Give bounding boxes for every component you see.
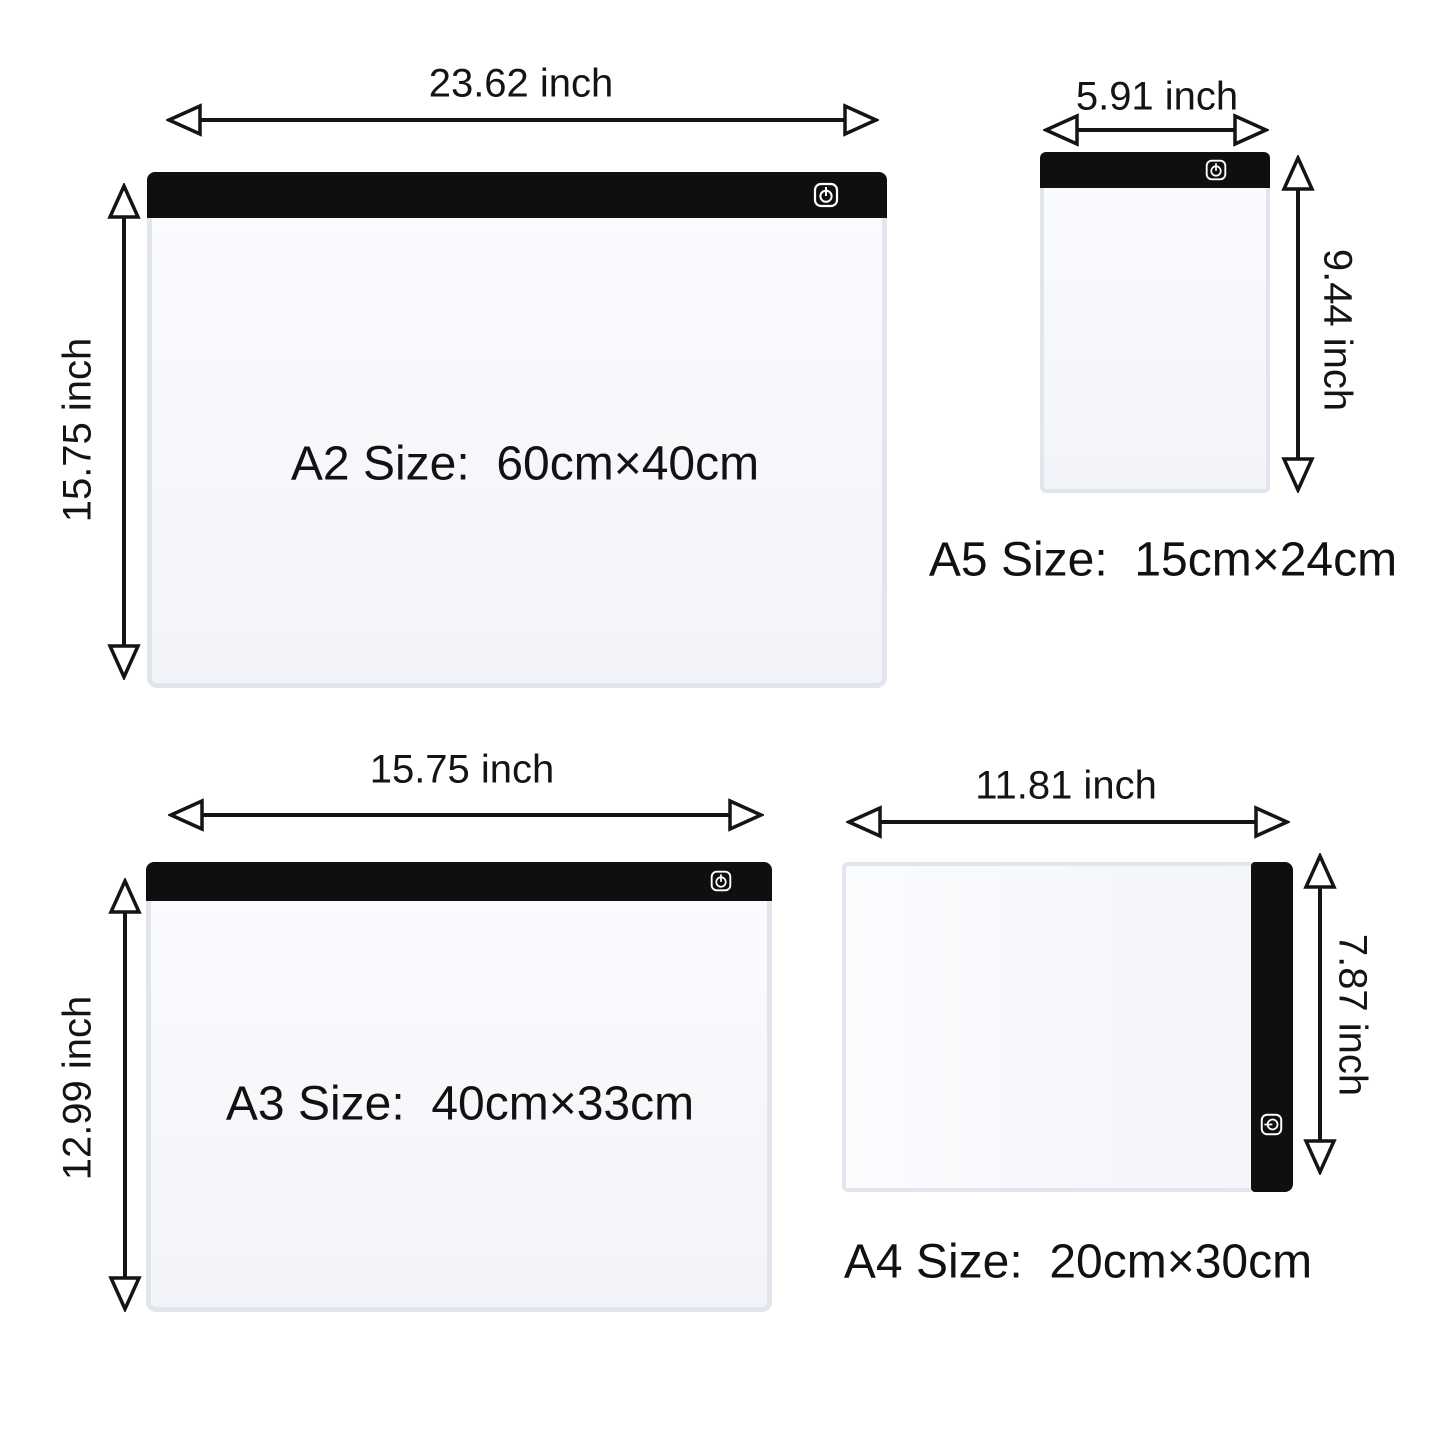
power-icon xyxy=(710,870,732,892)
a5-top-bar xyxy=(1040,152,1270,188)
a3-width-label: 15.75 inch xyxy=(370,748,555,793)
a2-size-caption: A2 Size: 60cm×40cm xyxy=(291,437,759,492)
a5-pad-surface xyxy=(1040,188,1270,493)
a4-side-bar xyxy=(1251,862,1293,1192)
dimension-diagram: 23.62 inch 15.75 inch A2 Size: 60cm×40cm… xyxy=(0,0,1445,1445)
a4-light-pad xyxy=(842,862,1293,1192)
a5-light-pad xyxy=(1040,152,1270,493)
power-icon xyxy=(1205,159,1227,181)
a5-height-label: 9.44 inch xyxy=(1315,249,1360,411)
a4-height-label: 7.87 inch xyxy=(1330,934,1375,1096)
power-icon xyxy=(1260,1113,1283,1136)
a3-height-label: 12.99 inch xyxy=(56,996,101,1181)
a4-pad-surface xyxy=(842,862,1251,1192)
a4-width-arrow xyxy=(846,802,1290,842)
a3-size-caption: A3 Size: 40cm×33cm xyxy=(226,1077,694,1132)
a5-height-arrow xyxy=(1278,155,1318,493)
a3-width-arrow xyxy=(168,795,764,835)
a5-width-arrow xyxy=(1043,110,1269,150)
a2-width-arrow xyxy=(166,100,879,140)
a2-top-bar xyxy=(147,172,887,218)
a2-height-arrow xyxy=(104,183,144,680)
a3-top-bar xyxy=(146,862,772,901)
a3-height-arrow xyxy=(105,878,145,1312)
a2-light-pad xyxy=(147,172,887,688)
a5-size-caption: A5 Size: 15cm×24cm xyxy=(929,533,1397,588)
a2-height-label: 15.75 inch xyxy=(56,338,101,523)
power-icon xyxy=(813,182,839,208)
a4-size-caption: A4 Size: 20cm×30cm xyxy=(844,1235,1312,1290)
